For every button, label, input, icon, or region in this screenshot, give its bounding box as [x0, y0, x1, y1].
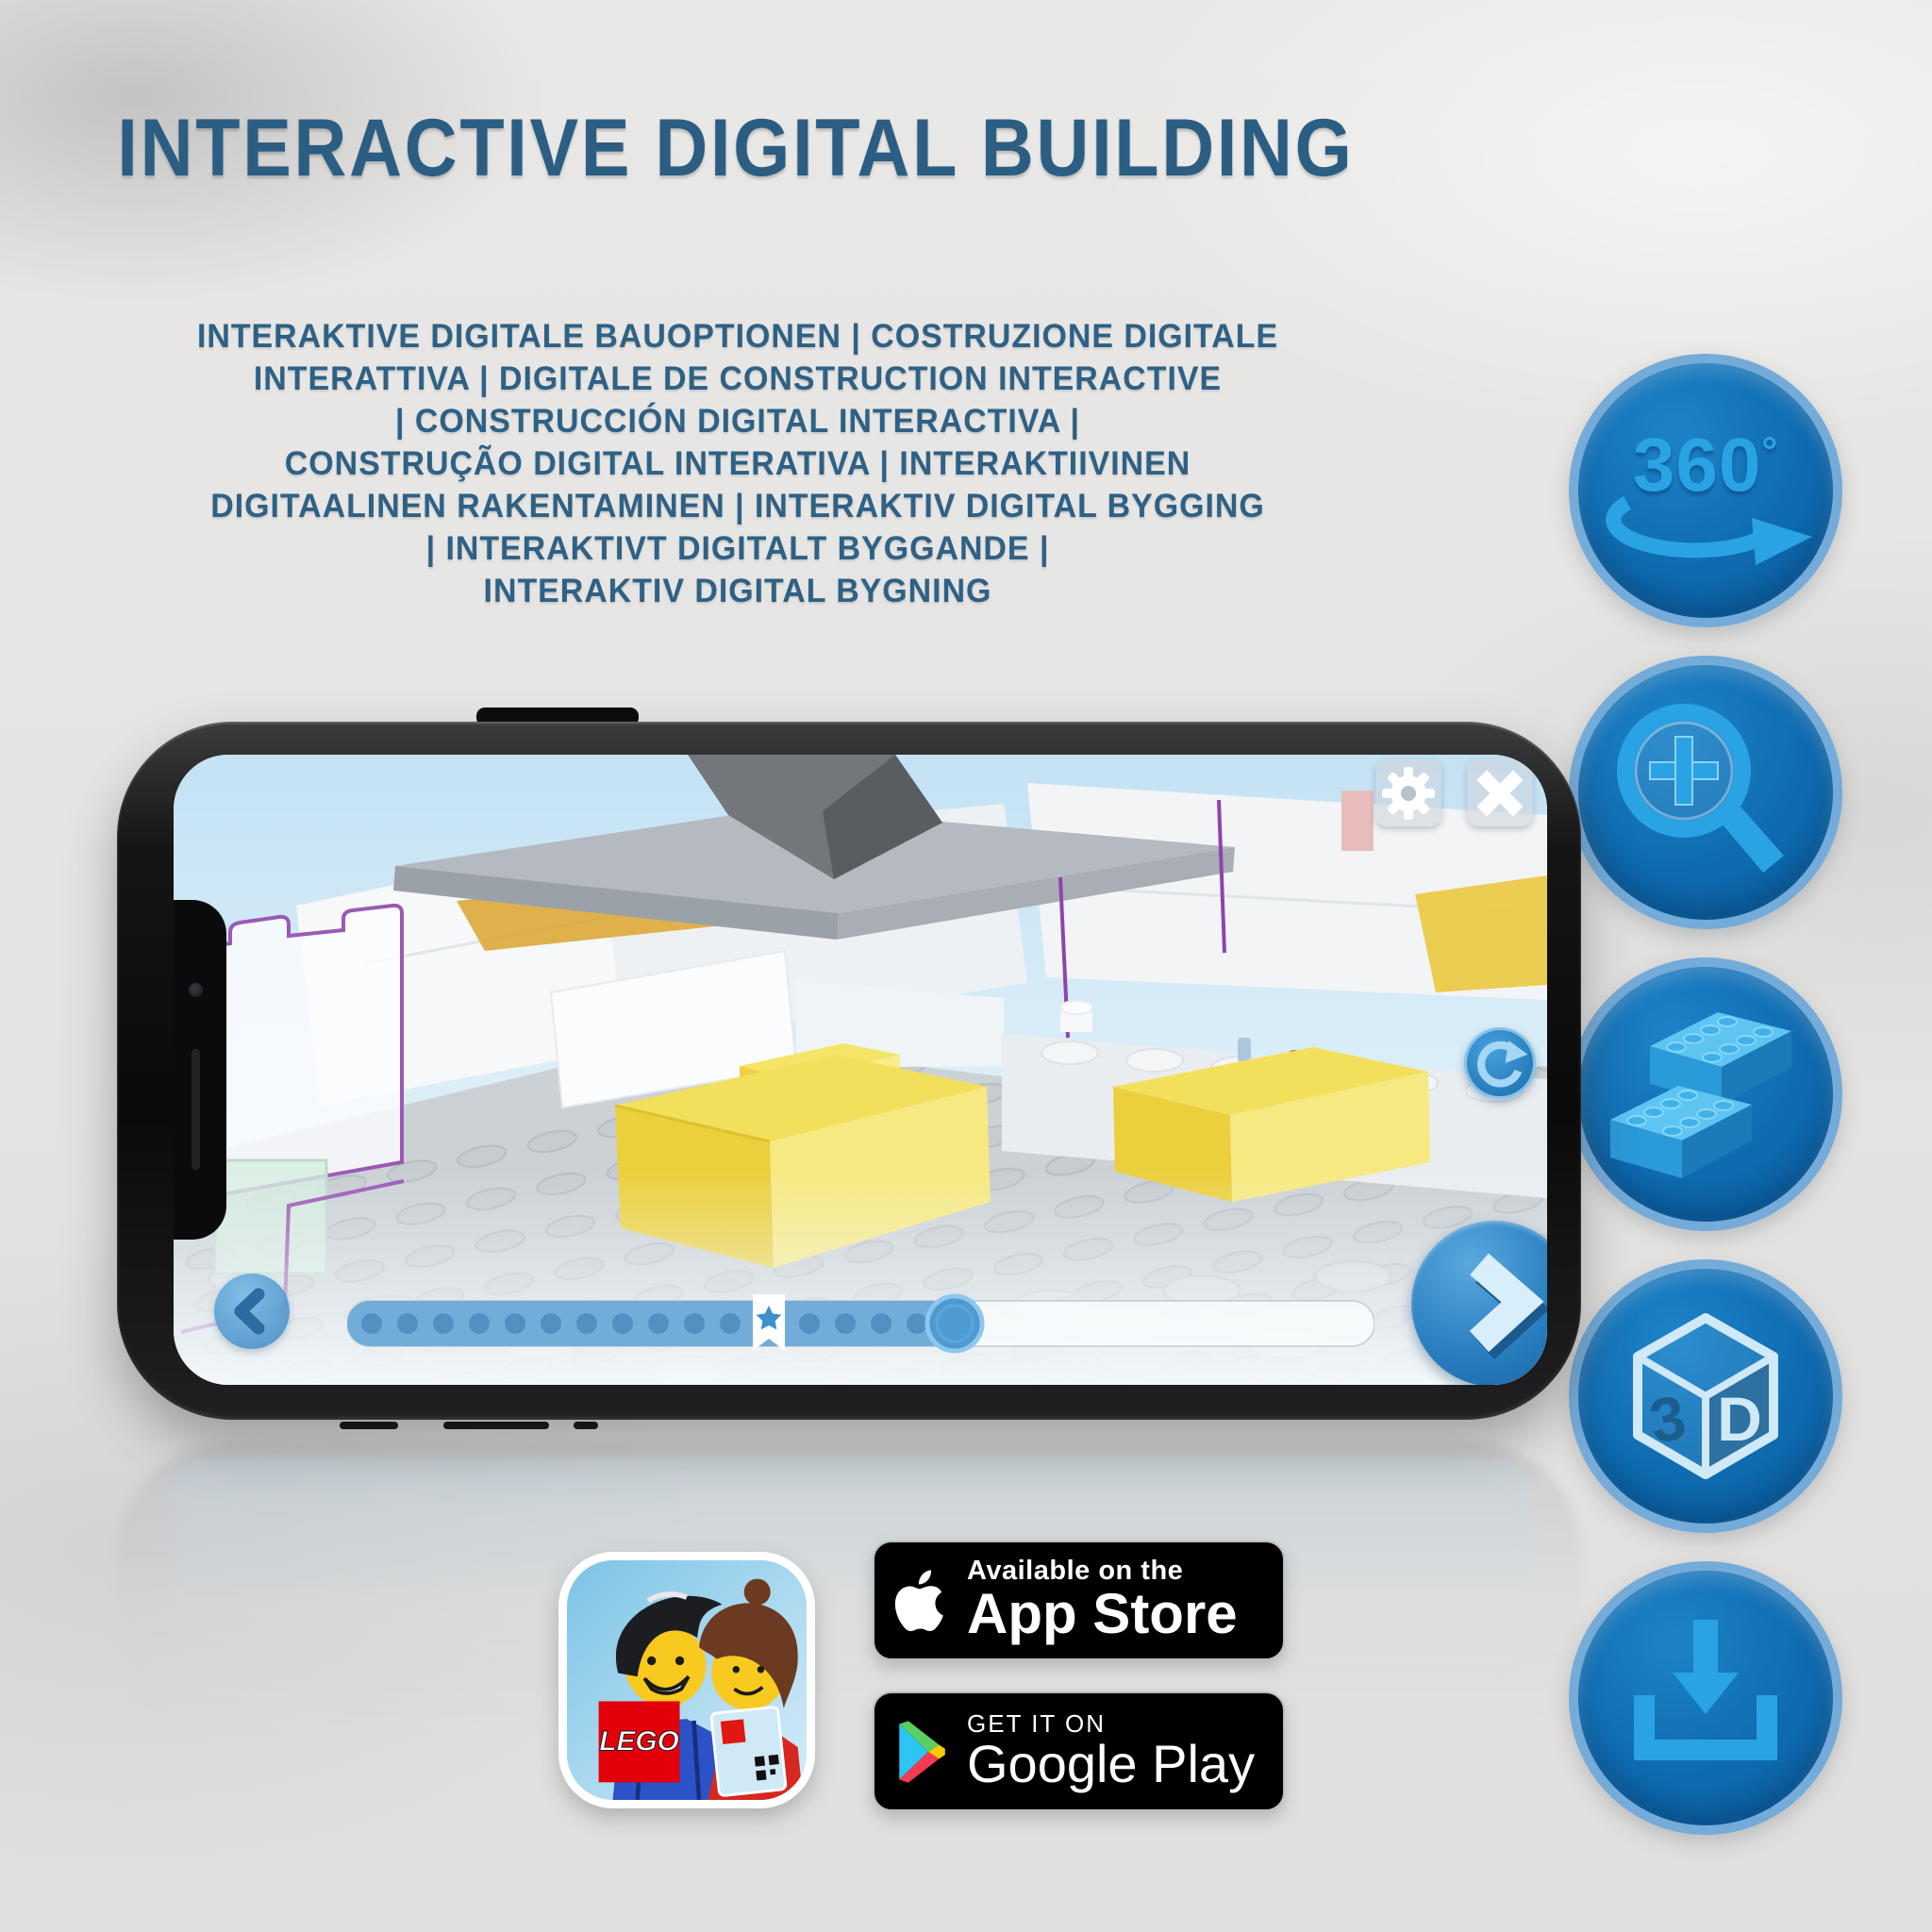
screen-reflection — [174, 1458, 1528, 1675]
phone-port — [340, 1422, 398, 1429]
poster-canvas: INTERACTIVE DIGITAL BUILDING INTERAKTIVE… — [0, 0, 1932, 1932]
qr-card — [711, 1707, 787, 1796]
feature-3d-view: 3 D — [1569, 1259, 1842, 1533]
lego-3d-scene[interactable]: LEGO LEGO — [174, 755, 1547, 1385]
feature-360-rotation: 360° — [1569, 354, 1842, 627]
phone-notch — [174, 900, 226, 1240]
next-step-button[interactable] — [1411, 1221, 1547, 1385]
subtitle-line: INTERATTIVA | DIGITALE DE CONSTRUCTION I… — [140, 358, 1337, 400]
lego-logo-text: LEGO — [599, 1726, 679, 1757]
label-d: D — [1717, 1384, 1762, 1454]
subtitle-line: INTERAKTIVE DIGITALE BAUOPTIONEN | COSTR… — [140, 315, 1337, 358]
chevron-right-icon — [1411, 1221, 1547, 1385]
google-play-name: Google Play — [967, 1737, 1255, 1791]
zoom-in-icon — [1578, 665, 1833, 920]
close-icon — [1467, 758, 1533, 826]
rotate-icon — [1467, 1030, 1533, 1096]
download-icon — [1578, 1571, 1833, 1825]
build-progress-slider[interactable] — [347, 1292, 1374, 1355]
settings-button[interactable] — [1375, 758, 1441, 826]
subtitle-line: DIGITAALINEN RAKENTAMINEN | INTERAKTIV D… — [140, 485, 1337, 527]
app-store-name: App Store — [967, 1585, 1238, 1643]
subtitle-line: INTERAKTIV DIGITAL BYGNING — [140, 570, 1337, 612]
phone-port — [574, 1422, 598, 1429]
page-title: INTERACTIVE DIGITAL BUILDING — [74, 102, 1398, 195]
previous-step-button[interactable] — [214, 1274, 290, 1349]
degree-symbol: ° — [1761, 428, 1778, 473]
phone: LEGO LEGO — [117, 722, 1581, 1420]
speaker-slit — [192, 1049, 200, 1170]
lego-logo: LEGO — [599, 1701, 680, 1782]
subtitle-line: | INTERAKTIVT DIGITALT BYGGANDE | — [140, 527, 1337, 570]
apple-icon — [874, 1568, 967, 1634]
app-store-badge[interactable]: Available on the App Store — [873, 1541, 1285, 1660]
gear-icon — [1375, 758, 1441, 826]
lego-app-artwork: LEGO — [567, 1560, 807, 1800]
feature-download — [1569, 1561, 1842, 1835]
multilingual-subtitle: INTERAKTIVE DIGITALE BAUOPTIONEN | COSTR… — [140, 315, 1337, 612]
app-store-tagline: Available on the — [967, 1557, 1238, 1585]
feature-bricks — [1569, 958, 1842, 1231]
rotate-reset-button[interactable] — [1464, 1027, 1536, 1099]
google-play-tagline: GET IT ON — [967, 1711, 1255, 1737]
subtitle-line: CONSTRUÇÃO DIGITAL INTERATIVA | INTERAKT… — [140, 442, 1337, 485]
camera-dot — [189, 983, 203, 997]
chevron-left-icon — [214, 1274, 290, 1349]
feature-zoom — [1569, 656, 1842, 929]
close-button[interactable] — [1467, 758, 1533, 826]
cube-3d-icon: 3 D — [1578, 1269, 1833, 1524]
phone-screen: LEGO LEGO — [174, 755, 1547, 1385]
lego-app-icon[interactable]: LEGO — [558, 1552, 815, 1808]
label-360: 360° — [1578, 422, 1833, 508]
phone-speaker-grille — [443, 1422, 549, 1429]
subtitle-line: | CONSTRUCCIÓN DIGITAL INTERACTIVA | — [140, 400, 1337, 442]
lego-bricks-icon — [1578, 967, 1833, 1222]
phone-reflection — [117, 1441, 1581, 1819]
google-play-badge[interactable]: GET IT ON Google Play — [873, 1691, 1285, 1811]
google-play-icon — [874, 1721, 967, 1783]
